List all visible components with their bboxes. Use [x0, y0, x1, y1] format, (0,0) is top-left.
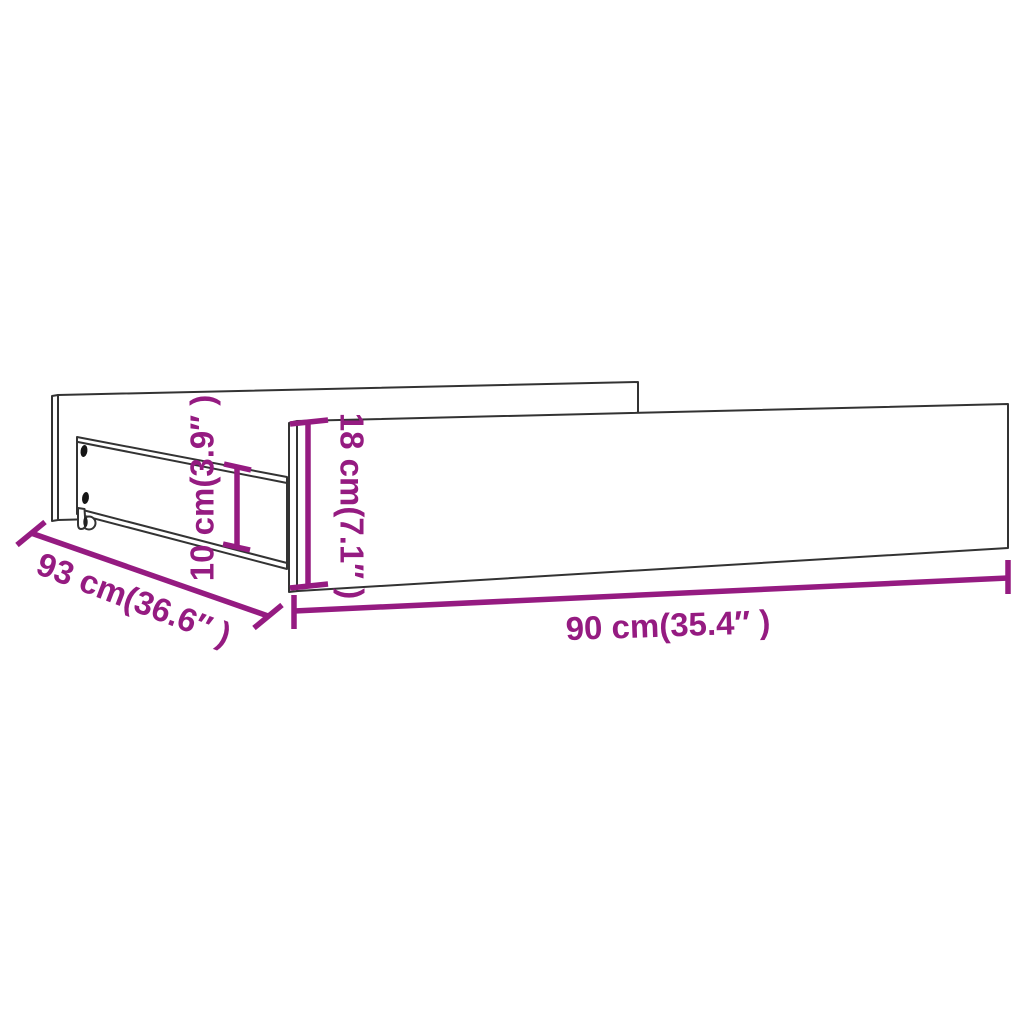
depth-left-tick [17, 522, 45, 545]
caster-hub-shadow [83, 517, 87, 527]
width-label: 90 cm(35.4″ ) [565, 603, 771, 647]
back-panel-edge-strip [52, 395, 58, 521]
bed-drawer-dimension-diagram: 18 cm(7.1″ ) 10 cm(3.9″ ) 93 cm(36.6″ ) … [0, 0, 1024, 1024]
drawer-front-panel [289, 404, 1008, 592]
front-panel-face [289, 404, 1008, 592]
product-dimension-image: 18 cm(7.1″ ) 10 cm(3.9″ ) 93 cm(36.6″ ) … [0, 0, 1024, 1024]
side-height-label: 10 cm(3.9″ ) [184, 395, 221, 581]
front-height-label: 18 cm(7.1″ ) [334, 413, 371, 599]
depth-right-tick [254, 605, 282, 628]
